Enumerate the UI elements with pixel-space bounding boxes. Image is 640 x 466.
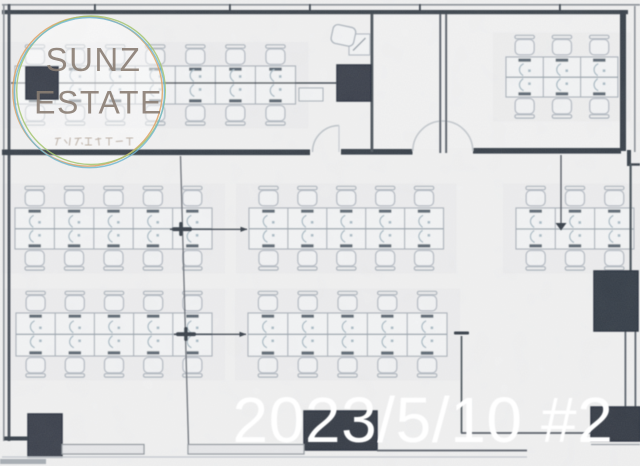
svg-text:2023/5/10 #2: 2023/5/10 #2 — [233, 384, 614, 456]
